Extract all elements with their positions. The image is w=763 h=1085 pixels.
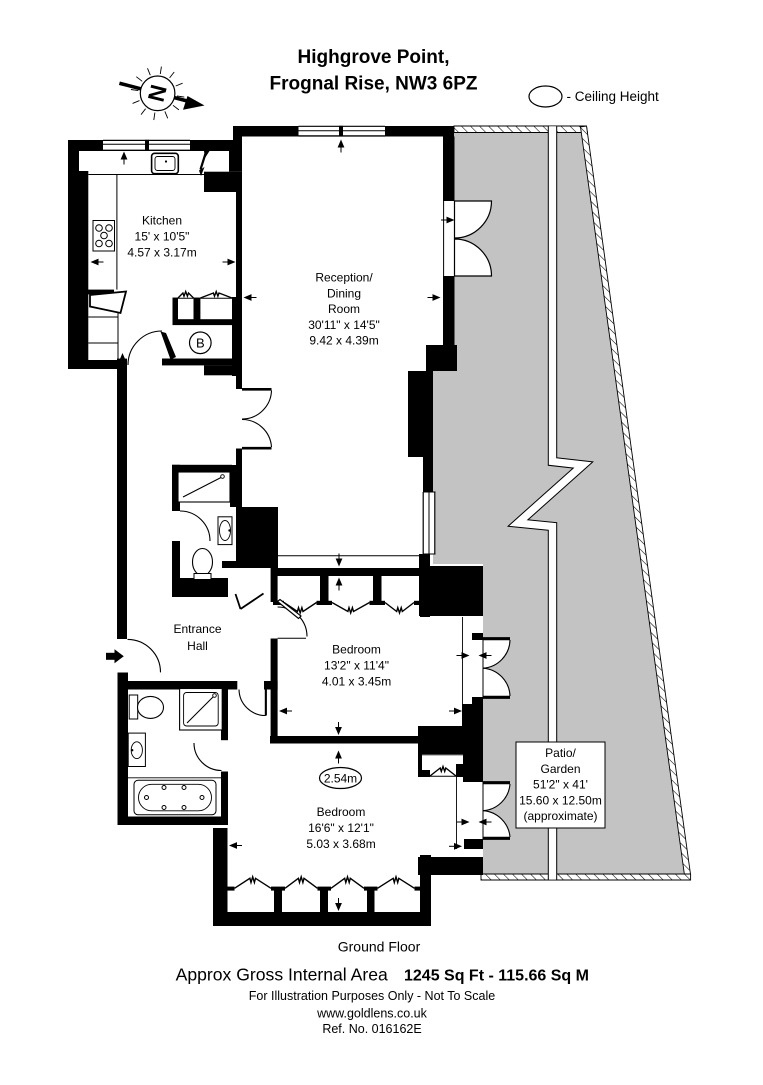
svg-text:Garden: Garden [540,762,580,776]
svg-text:Hall: Hall [187,639,208,653]
svg-text:Kitchen: Kitchen [142,213,182,227]
svg-text:Bedroom: Bedroom [332,643,381,657]
svg-text:- Ceiling Height: - Ceiling Height [567,89,660,104]
svg-text:For Illustration Purposes Only: For Illustration Purposes Only - Not To … [249,989,495,1003]
svg-text:16'6" x 12'1": 16'6" x 12'1" [308,821,374,835]
svg-text:(approximate): (approximate) [523,809,597,823]
svg-text:Entrance: Entrance [173,622,221,636]
svg-text:Reception/: Reception/ [315,271,373,285]
svg-text:1245 Sq Ft - 115.66 Sq M: 1245 Sq Ft - 115.66 Sq M [404,968,589,985]
svg-text:5.03 x 3.68m: 5.03 x 3.68m [306,837,375,851]
svg-text:4.01 x 3.45m: 4.01 x 3.45m [322,675,391,689]
svg-text:Approx Gross Internal Area: Approx Gross Internal Area [176,965,388,985]
svg-text:2.54m: 2.54m [324,771,357,785]
svg-text:30'11" x 14'5": 30'11" x 14'5" [308,318,380,332]
svg-text:Ref. No. 016162E: Ref. No. 016162E [322,1022,421,1036]
svg-text:13'2" x 11'4": 13'2" x 11'4" [324,659,389,673]
svg-text:Highgrove Point,: Highgrove Point, [298,47,450,68]
svg-text:Ground Floor: Ground Floor [338,939,421,955]
svg-text:15' x 10'5": 15' x 10'5" [135,229,190,243]
svg-text:Room: Room [328,302,360,316]
svg-text:Frognal Rise, NW3 6PZ: Frognal Rise, NW3 6PZ [270,74,478,95]
svg-text:B: B [196,335,205,350]
svg-text:15.60 x 12.50m: 15.60 x 12.50m [519,793,602,807]
svg-text:Dining: Dining [327,286,361,300]
svg-text:51'2" x 41': 51'2" x 41' [533,778,588,792]
svg-text:www.goldlens.co.uk: www.goldlens.co.uk [316,1007,428,1021]
svg-text:4.57 x 3.17m: 4.57 x 3.17m [127,246,196,260]
svg-text:Patio/: Patio/ [545,746,576,760]
svg-text:9.42 x 4.39m: 9.42 x 4.39m [309,334,378,348]
svg-text:Bedroom: Bedroom [317,805,366,819]
